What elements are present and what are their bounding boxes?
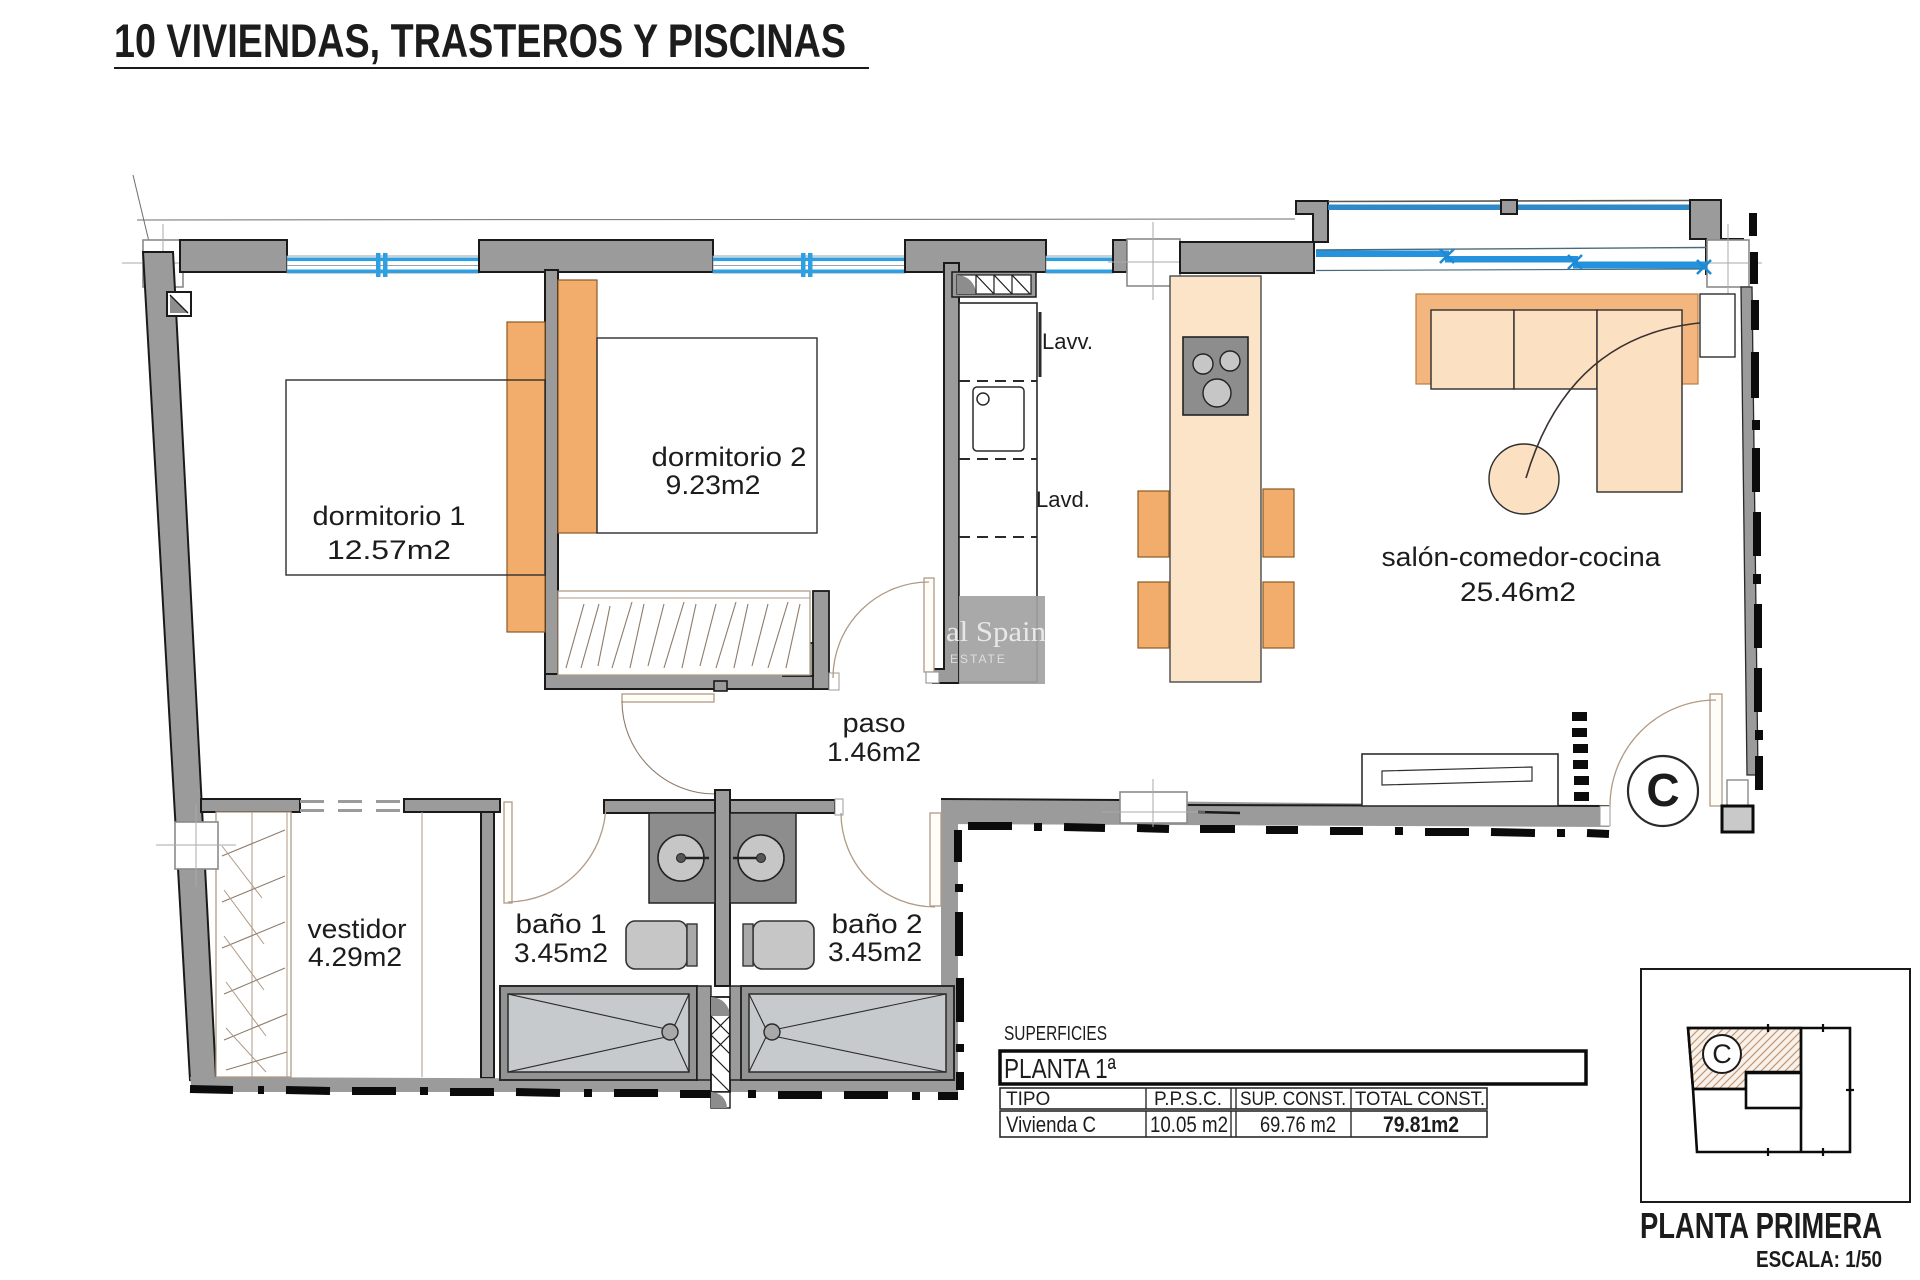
svg-text:Lavv.: Lavv. (1042, 329, 1093, 354)
svg-text:C: C (1646, 764, 1679, 816)
svg-text:ESTATE: ESTATE (950, 652, 1007, 666)
svg-text:10.05 m2: 10.05 m2 (1150, 1112, 1228, 1137)
svg-text:dormitorio 2: dormitorio 2 (652, 442, 807, 472)
svg-text:1.46m2: 1.46m2 (827, 737, 921, 767)
svg-text:ESCALA: 1/50: ESCALA: 1/50 (1756, 1246, 1882, 1272)
svg-text:12.57m2: 12.57m2 (327, 535, 451, 565)
svg-text:TIPO: TIPO (1006, 1089, 1050, 1110)
svg-text:Lavd.: Lavd. (1036, 487, 1090, 512)
svg-text:dormitorio 1: dormitorio 1 (313, 501, 466, 531)
svg-text:SUPERFICIES: SUPERFICIES (1004, 1023, 1107, 1045)
svg-text:79.81m2: 79.81m2 (1383, 1112, 1459, 1137)
svg-text:al Spain: al Spain (946, 617, 1046, 648)
svg-text:baño 1: baño 1 (516, 909, 607, 939)
svg-text:P.P.S.C.: P.P.S.C. (1154, 1089, 1222, 1110)
svg-text:69.76 m2: 69.76 m2 (1260, 1112, 1336, 1137)
svg-text:paso: paso (843, 708, 906, 738)
svg-text:25.46m2: 25.46m2 (1460, 577, 1576, 607)
svg-text:PLANTA PRIMERA: PLANTA PRIMERA (1640, 1205, 1882, 1246)
svg-text:3.45m2: 3.45m2 (828, 937, 922, 967)
svg-text:Vivienda C: Vivienda C (1006, 1112, 1096, 1137)
svg-text:PLANTA 1ª: PLANTA 1ª (1004, 1053, 1117, 1084)
svg-text:10 VIVIENDAS, TRASTEROS Y PISC: 10 VIVIENDAS, TRASTEROS Y PISCINAS (114, 14, 846, 67)
svg-text:salón-comedor-cocina: salón-comedor-cocina (1382, 542, 1662, 572)
svg-text:3.45m2: 3.45m2 (514, 938, 608, 968)
svg-text:TOTAL CONST.: TOTAL CONST. (1355, 1089, 1485, 1110)
svg-text:baño 2: baño 2 (832, 909, 923, 939)
svg-text:C: C (1712, 1039, 1732, 1069)
svg-text:9.23m2: 9.23m2 (666, 470, 761, 500)
svg-text:vestidor: vestidor (308, 914, 407, 944)
svg-text:SUP. CONST.: SUP. CONST. (1240, 1089, 1346, 1110)
svg-text:4.29m2: 4.29m2 (308, 942, 402, 972)
